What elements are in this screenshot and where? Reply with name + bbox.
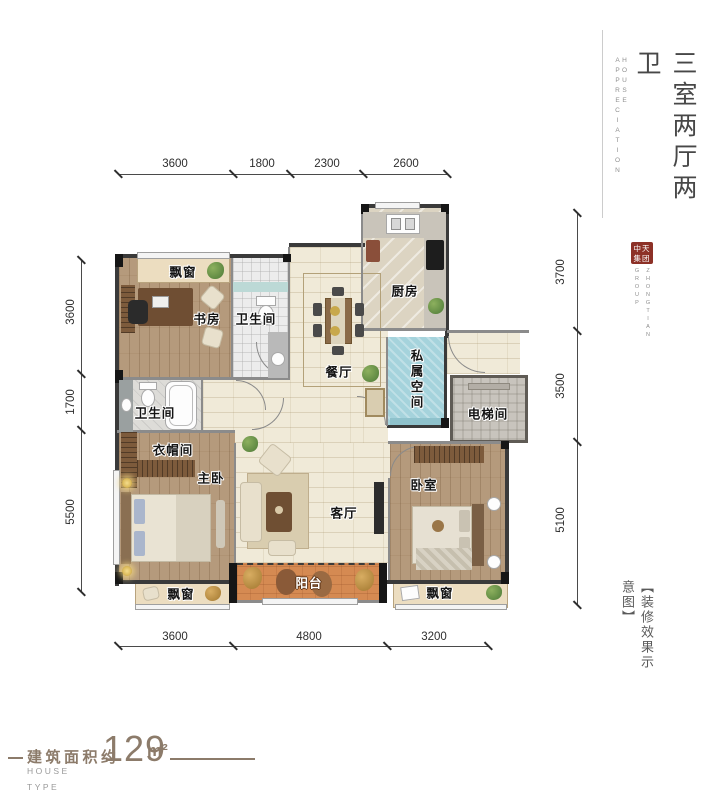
label-dining: 餐厅 [325, 362, 352, 381]
brand-seal-logo: 中天 集团 [631, 242, 653, 264]
hall-mat [365, 388, 385, 417]
dim-bottom-2: 4800 [296, 631, 322, 643]
label-living: 客厅 [330, 503, 357, 522]
wall-corner [115, 254, 123, 267]
wall-partition [386, 337, 388, 426]
plant [486, 585, 502, 600]
wall-corner [441, 418, 449, 428]
bedroom-headboard [472, 504, 484, 566]
floorplan-page: 飘窗 书房 卫生间 厨房 餐厅 私属空间 电梯间 卫生间 衣帽间 主卧 客厅 卧… [0, 0, 701, 800]
wall-segment [289, 243, 365, 247]
dining-plate [330, 306, 340, 316]
study-chair [128, 300, 148, 324]
bathroom-mosaic-strip [233, 282, 290, 292]
bath-mid-sink [121, 398, 132, 412]
wall-partition [447, 330, 529, 333]
brand-name-col-right: ZHONGTIAN [645, 268, 651, 358]
wall-partition [117, 377, 290, 380]
label-bath-mid: 卫生间 [135, 403, 176, 422]
seal-text-bottom: 集团 [631, 254, 653, 264]
wall-segment [505, 441, 509, 584]
dim-left-1: 3600 [65, 299, 77, 325]
label-bay-window-right: 飘窗 [426, 583, 453, 602]
dim-right-1: 3700 [555, 259, 567, 285]
wall-corner [115, 572, 123, 584]
dining-chair [332, 346, 344, 355]
kitchen-stove [426, 240, 444, 270]
dim-left-2: 1700 [65, 389, 77, 415]
dim-left-3: 5500 [65, 499, 77, 525]
kitchen-sink-bowl [391, 218, 401, 230]
plant [362, 365, 379, 382]
wall-corner [283, 254, 291, 262]
master-pillow [134, 531, 145, 556]
footer-house: HOUSE [27, 766, 70, 776]
dim-right-3: 5100 [555, 507, 567, 533]
kitchen-cart [366, 240, 380, 262]
window-band [113, 470, 120, 565]
window-band [135, 604, 230, 610]
wall-partition [234, 443, 236, 580]
dim-bottom-3: 3200 [421, 631, 447, 643]
brand-name-col-left: GROUP [634, 268, 640, 328]
plant [207, 262, 224, 279]
label-study: 书房 [193, 309, 220, 328]
sidebar-divider [602, 30, 603, 218]
table-decor [275, 506, 283, 514]
study-laptop [152, 296, 169, 308]
dining-chair [313, 303, 322, 316]
label-cloakroom: 衣帽间 [153, 440, 194, 459]
wall-partition [231, 258, 233, 377]
label-kitchen: 厨房 [391, 281, 418, 300]
elevator-car [468, 383, 510, 390]
cloak-wardrobe [137, 460, 195, 477]
master-headboard [121, 492, 131, 564]
dining-chair [313, 324, 322, 337]
dining-chair [355, 303, 364, 316]
label-master: 主卧 [197, 468, 224, 487]
kitchen-sink-bowl [405, 218, 415, 230]
sidebar-subtitle: HOUSE APPRECIATION [614, 57, 628, 227]
footer-type: TYPE [27, 782, 59, 792]
bedroom-wardrobe [414, 446, 484, 463]
footer-rule-right [170, 758, 255, 760]
dim-line-right [577, 212, 578, 605]
plant [242, 436, 258, 452]
dim-line-left [81, 259, 82, 592]
wall-corner [379, 563, 387, 603]
dim-top-1: 3600 [162, 158, 188, 170]
living-stool [268, 540, 296, 556]
bedroom-rug [416, 548, 472, 570]
window-band [375, 202, 420, 209]
master-bench [216, 500, 225, 548]
wall-partition [388, 478, 390, 580]
dim-top-3: 2300 [314, 158, 340, 170]
bay-pillow [400, 585, 420, 601]
area-unit: m² [147, 741, 168, 761]
plant [428, 298, 444, 314]
wall-segment [387, 425, 447, 428]
wall-corner [229, 563, 237, 603]
render-caption: 【装修效果示意图】 [618, 580, 656, 680]
label-bedroom: 卧室 [410, 475, 437, 494]
wall-partition [201, 380, 203, 432]
master-pillow [134, 499, 145, 524]
window-band [395, 604, 507, 610]
label-bay-window-left: 飘窗 [167, 584, 194, 603]
wall-partition [388, 441, 506, 444]
dim-bottom-1: 3600 [162, 631, 188, 643]
lamp [122, 478, 132, 488]
footer-rule-left [8, 757, 23, 759]
dim-line-bottom [118, 646, 488, 647]
dim-right-2: 3500 [555, 373, 567, 399]
dining-chair [332, 287, 344, 296]
master-blanket [176, 495, 210, 561]
wall-corner [501, 572, 509, 584]
window-band [262, 598, 358, 605]
dining-runner [331, 298, 345, 344]
lamp [122, 566, 132, 576]
sofa [240, 482, 262, 542]
nightstand [487, 497, 501, 511]
dim-top-4: 2600 [393, 158, 419, 170]
wall-partition [363, 328, 446, 331]
seal-text-top: 中天 [631, 244, 653, 254]
label-balcony: 阳台 [295, 573, 322, 592]
window-band [137, 252, 230, 259]
nightstand [487, 555, 501, 569]
tv-console [374, 482, 384, 534]
dim-line-top [118, 174, 448, 175]
dining-plate [330, 326, 340, 336]
bath-sink [271, 352, 285, 366]
page-title: 三室两厅两卫 [629, 50, 701, 225]
bedroom-pillow [459, 510, 470, 532]
wall-segment [444, 336, 447, 428]
dining-chair [355, 324, 364, 337]
label-elevator: 电梯间 [468, 404, 509, 423]
label-bay-window-top: 飘窗 [169, 262, 196, 281]
label-private-space: 私属空间 [407, 349, 426, 411]
wall-corner [501, 441, 509, 449]
label-bath-top: 卫生间 [236, 309, 277, 328]
bedroom-toy [432, 520, 444, 532]
dim-top-2: 1800 [249, 158, 275, 170]
